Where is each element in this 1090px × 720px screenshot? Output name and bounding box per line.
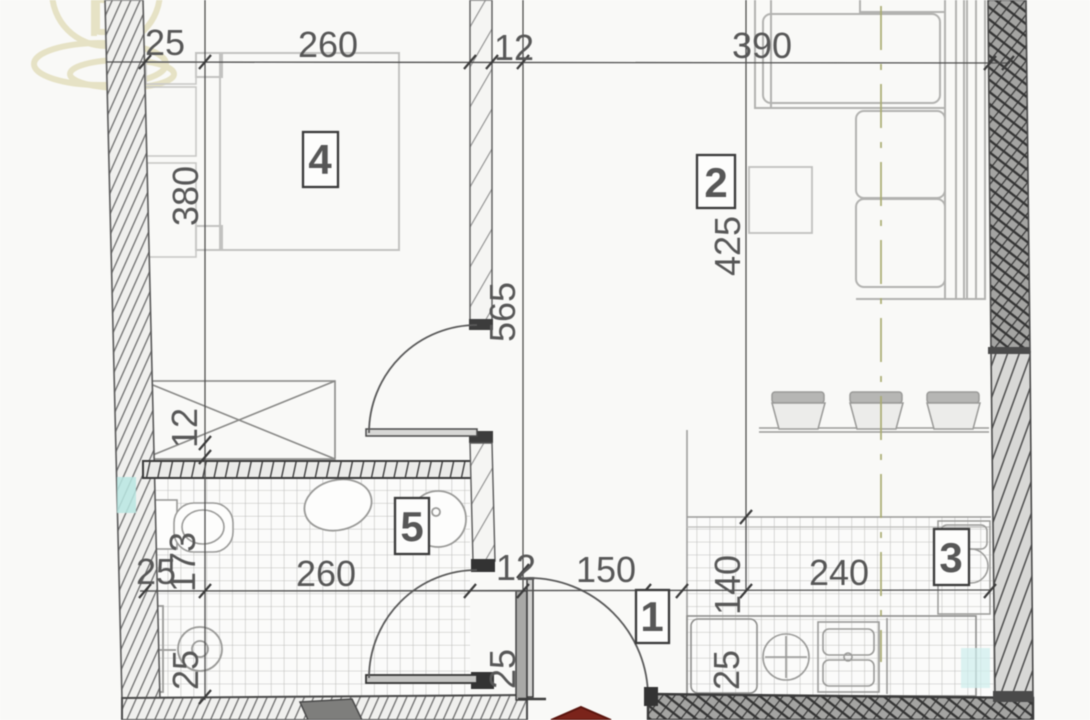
svg-text:260: 260	[296, 553, 356, 594]
svg-text:25: 25	[145, 22, 185, 63]
svg-text:425: 425	[707, 216, 748, 276]
svg-text:25: 25	[165, 650, 206, 690]
svg-text:12: 12	[496, 547, 536, 588]
svg-text:260: 260	[298, 24, 358, 65]
svg-text:173: 173	[162, 532, 203, 592]
svg-text:2: 2	[704, 159, 727, 206]
svg-text:12: 12	[494, 27, 534, 68]
svg-text:140: 140	[707, 555, 748, 615]
svg-text:380: 380	[165, 166, 206, 226]
svg-text:390: 390	[732, 25, 792, 66]
svg-text:565: 565	[482, 282, 523, 342]
svg-text:5: 5	[400, 503, 423, 550]
svg-text:25: 25	[706, 650, 747, 690]
svg-text:12: 12	[164, 408, 205, 448]
svg-text:1: 1	[640, 593, 663, 640]
svg-text:4: 4	[308, 136, 332, 183]
svg-text:3: 3	[939, 534, 962, 581]
svg-text:240: 240	[809, 552, 869, 593]
svg-text:150: 150	[576, 549, 636, 590]
svg-text:25: 25	[482, 649, 523, 689]
